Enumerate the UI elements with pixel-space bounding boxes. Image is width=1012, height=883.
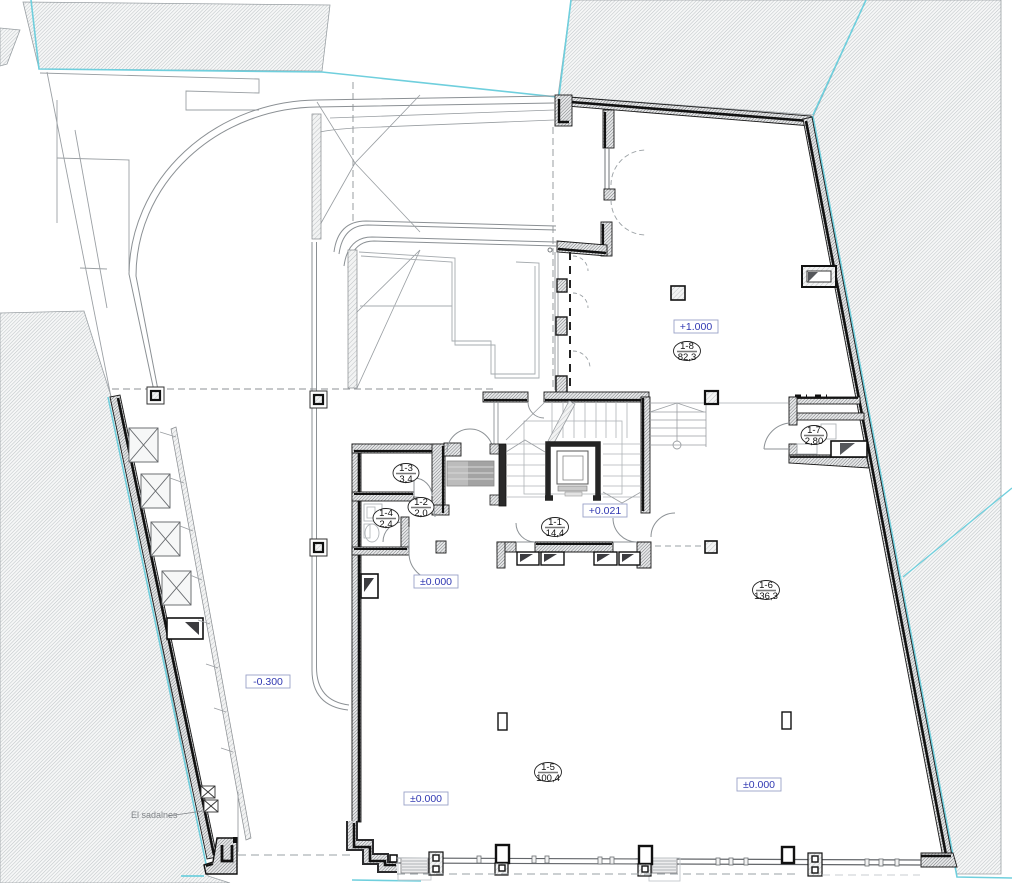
svg-text:2,4: 2,4 xyxy=(379,519,392,530)
svg-text:1-8: 1-8 xyxy=(680,341,694,352)
svg-text:1-7: 1-7 xyxy=(807,425,821,436)
svg-text:+0.021: +0.021 xyxy=(589,505,622,517)
svg-text:1-3: 1-3 xyxy=(399,463,413,474)
svg-text:3,4: 3,4 xyxy=(399,474,412,485)
svg-text:±0.000: ±0.000 xyxy=(410,793,442,805)
svg-text:136,3: 136,3 xyxy=(754,591,778,602)
svg-text:±0.000: ±0.000 xyxy=(743,779,775,791)
svg-text:14,4: 14,4 xyxy=(546,528,565,539)
svg-text:+1.000: +1.000 xyxy=(680,321,713,333)
svg-text:1-5: 1-5 xyxy=(541,762,555,773)
svg-text:2,80: 2,80 xyxy=(805,436,824,447)
svg-text:1-1: 1-1 xyxy=(548,517,562,528)
svg-text:82,3: 82,3 xyxy=(678,352,697,363)
svg-text:-0.300: -0.300 xyxy=(253,676,283,688)
svg-text:1-4: 1-4 xyxy=(379,508,393,519)
svg-text:1-6: 1-6 xyxy=(759,580,773,591)
svg-text:±0.000: ±0.000 xyxy=(420,576,452,588)
svg-text:El sadalnes: El sadalnes xyxy=(131,810,178,820)
svg-text:1-2: 1-2 xyxy=(414,497,428,508)
svg-text:2,0: 2,0 xyxy=(414,508,427,519)
svg-text:100,4: 100,4 xyxy=(536,773,560,784)
